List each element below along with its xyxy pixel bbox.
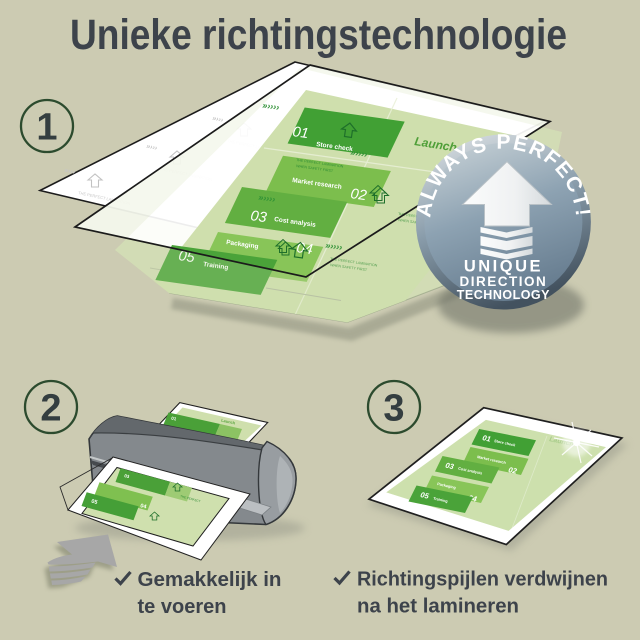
svg-text:2: 2 (40, 388, 61, 430)
svg-text:02: 02 (349, 186, 367, 204)
svg-text:te voeren: te voeren (138, 595, 227, 618)
svg-text:UNIQUE: UNIQUE (464, 258, 543, 276)
svg-text:3: 3 (383, 388, 404, 430)
svg-text:TECHNOLOGY: TECHNOLOGY (457, 288, 550, 302)
svg-text:Unieke richtingstechnologie: Unieke richtingstechnologie (70, 11, 567, 59)
svg-text:03: 03 (249, 208, 267, 226)
svg-text:na het lamineren: na het lamineren (357, 595, 519, 618)
svg-text:Richtingspijlen verdwijnen: Richtingspijlen verdwijnen (357, 568, 608, 591)
svg-text:DIRECTION: DIRECTION (460, 274, 548, 289)
svg-text:Gemakkelijk in: Gemakkelijk in (138, 568, 282, 591)
svg-text:01: 01 (291, 124, 309, 142)
svg-text:1: 1 (36, 107, 57, 149)
svg-text:04: 04 (295, 240, 313, 258)
